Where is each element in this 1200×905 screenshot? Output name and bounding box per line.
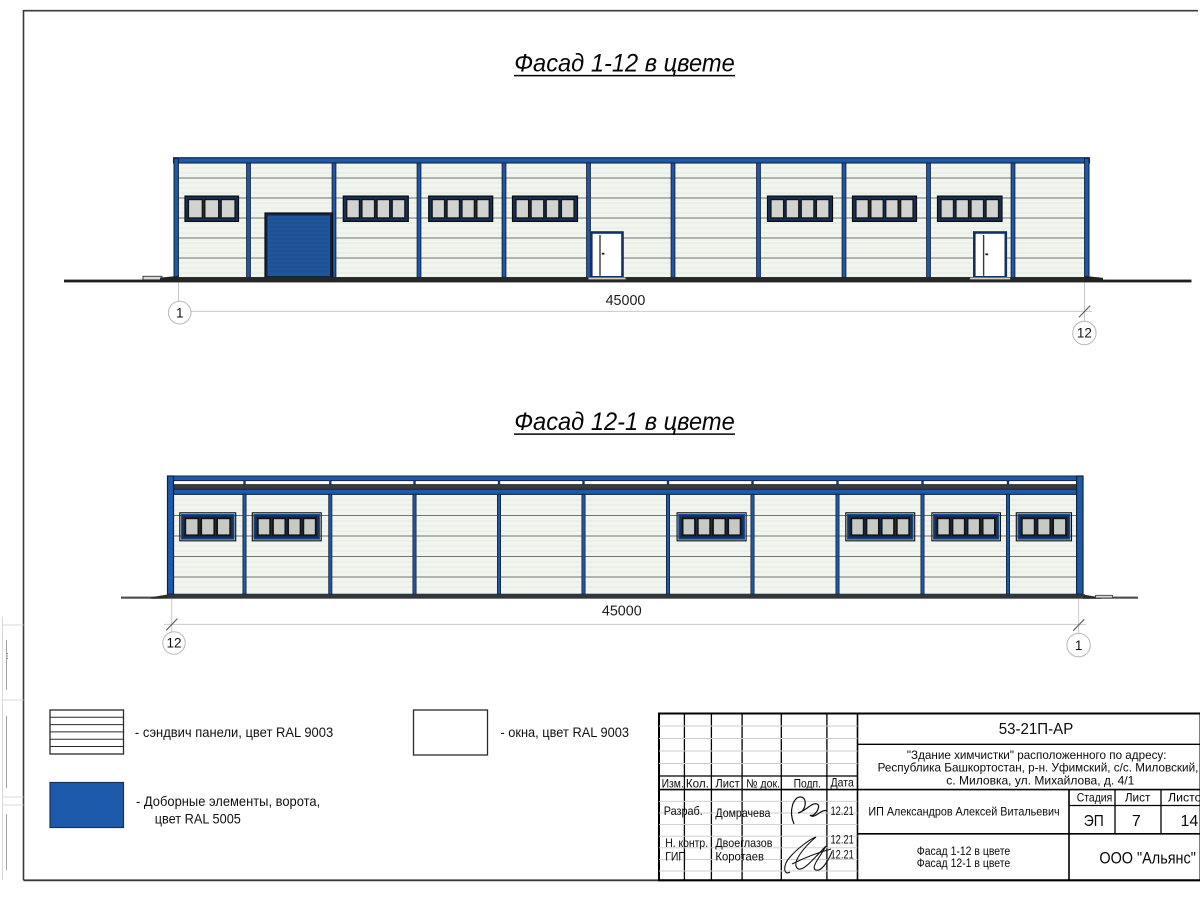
svg-text:Фасад 1-12 в цвете: Фасад 1-12 в цвете xyxy=(917,846,1011,858)
svg-text:Фасад 1-12 в цвете: Фасад 1-12 в цвете xyxy=(514,50,735,78)
svg-text:Республика Башкортостан, р-н.: Республика Башкортостан, р-н. Уфимский, … xyxy=(878,760,1199,774)
svg-text:Кол.: Кол. xyxy=(686,776,709,790)
svg-text:53-21П-АР: 53-21П-АР xyxy=(999,721,1074,738)
svg-text:- Доборные элементы, ворота,: - Доборные элементы, ворота, xyxy=(136,794,320,809)
svg-text:Двоеглазов: Двоеглазов xyxy=(715,836,772,850)
svg-text:цвет RAL 5005: цвет RAL 5005 xyxy=(155,812,241,827)
svg-text:12.21: 12.21 xyxy=(831,848,855,862)
svg-text:- окна, цвет RAL 9003: - окна, цвет RAL 9003 xyxy=(500,725,629,740)
svg-text:12.21: 12.21 xyxy=(831,804,855,818)
svg-text:Лист: Лист xyxy=(715,776,740,790)
svg-text:Фасад 12-1 в цвете: Фасад 12-1 в цвете xyxy=(917,858,1011,870)
svg-text:14: 14 xyxy=(1181,813,1199,830)
svg-text:ГИП: ГИП xyxy=(665,850,686,864)
svg-text:Фасад 12-1 в цвете: Фасад 12-1 в цвете xyxy=(514,408,735,436)
svg-text:ООО "Альянс": ООО "Альянс" xyxy=(1099,849,1196,868)
svg-text:45000: 45000 xyxy=(602,604,642,620)
svg-text:Листов: Листов xyxy=(1168,791,1200,805)
svg-text:7: 7 xyxy=(1132,813,1141,830)
svg-text:12: 12 xyxy=(1077,326,1092,341)
svg-text:Дата: Дата xyxy=(831,776,855,790)
svg-text:Стадия: Стадия xyxy=(1077,791,1112,805)
svg-text:Изм.: Изм. xyxy=(662,776,684,790)
svg-text:ЭП: ЭП xyxy=(1084,813,1104,830)
svg-text:Лист: Лист xyxy=(1125,791,1151,805)
svg-text:Разраб.: Разраб. xyxy=(664,804,703,818)
svg-text:45000: 45000 xyxy=(606,293,646,309)
svg-text:1: 1 xyxy=(1075,638,1083,653)
svg-text:…: … xyxy=(1,652,10,660)
svg-text:ИП Александров Алексей Виталье: ИП Александров Алексей Витальевич xyxy=(868,805,1059,819)
svg-text:1: 1 xyxy=(176,305,184,320)
svg-text:Домрачева: Домрачева xyxy=(715,806,770,820)
svg-text:12.21: 12.21 xyxy=(831,833,855,847)
svg-text:- сэндвич панели, цвет RAL 900: - сэндвич панели, цвет RAL 9003 xyxy=(135,725,333,740)
svg-text:Подп.: Подп. xyxy=(794,776,821,790)
svg-text:Н. контр.: Н. контр. xyxy=(665,836,708,850)
svg-text:№ док.: № док. xyxy=(746,776,780,790)
svg-text:Коротаев: Коротаев xyxy=(715,850,764,864)
svg-text:12: 12 xyxy=(166,636,181,651)
svg-text:с. Миловка, ул. Михайлова, д.: с. Миловка, ул. Михайлова, д. 4/1 xyxy=(946,773,1134,787)
